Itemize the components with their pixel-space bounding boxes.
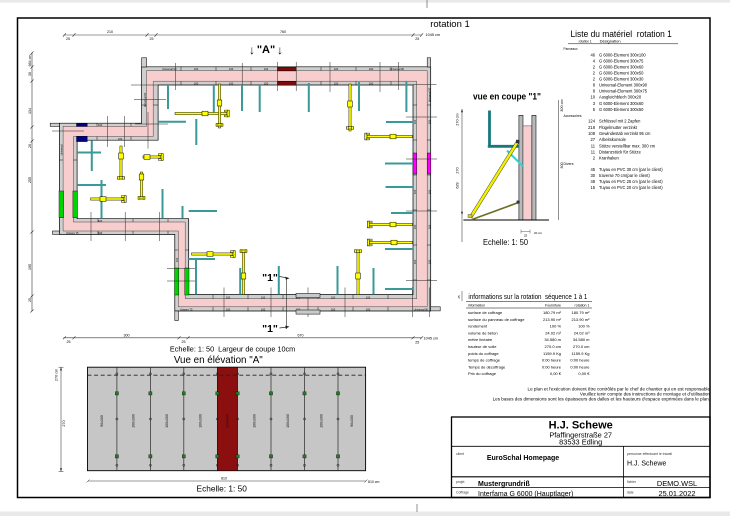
svg-text:134: 134 [28,108,32,114]
svg-text:Désignation: Désignation [600,40,621,44]
svg-text:G 6000-Element 300x60: G 6000-Element 300x60 [599,101,644,106]
svg-text:100: 100 [366,308,371,312]
svg-text:210: 210 [107,30,113,34]
svg-text:Universal: Universal [60,144,64,155]
svg-text:100: 100 [331,295,336,299]
svg-text:810: 810 [221,476,227,480]
svg-text:rotation 1: rotation 1 [430,19,470,30]
svg-text:Mustergrundriß: Mustergrundriß [478,481,530,488]
svg-text:Ausgleichblech 300x20: Ausgleichblech 300x20 [599,95,642,100]
svg-text:100 %: 100 % [578,324,590,329]
svg-text:24.02 m³: 24.02 m³ [574,330,590,335]
svg-text:G 6000-Element 300x30: G 6000-Element 300x30 [599,77,644,82]
svg-text:client: client [456,452,464,456]
svg-text:100: 100 [98,231,103,235]
svg-text:15: 15 [590,185,595,190]
svg-text:100: 100 [98,219,103,223]
svg-text:volume de béton: volume de béton [468,330,498,335]
svg-text:0,00 €: 0,00 € [578,371,590,376]
svg-text:270: 270 [456,167,460,173]
svg-text:Echelle: 1: 50 Largeur de cou: Echelle: 1: 50 Largeur de coupe 10cm [170,345,295,354]
svg-text:25: 25 [457,295,461,299]
svg-text:Panneaux: Panneaux [564,46,578,51]
svg-text:100x300: 100x300 [165,414,169,428]
svg-text:10: 10 [590,95,595,100]
svg-text:255: 255 [28,177,32,183]
svg-text:↓: ↓ [277,43,283,57]
svg-text:G 6000-Element 300x75: G 6000-Element 300x75 [599,58,644,63]
svg-text:0:00 heure: 0:00 heure [570,364,590,369]
svg-text:rendement: rendement [468,324,488,329]
svg-text:personne effectuant le travail: personne effectuant le travail [627,452,672,456]
svg-text:670: 670 [298,333,304,337]
svg-text:Flügelmutter verzinkt: Flügelmutter verzinkt [599,125,638,130]
svg-text:100: 100 [427,189,431,194]
svg-text:218: 218 [588,125,596,130]
svg-text:Universal-Element 300x75: Universal-Element 300x75 [599,89,648,94]
svg-text:Univers 75: Univers 75 [66,231,79,235]
svg-text:100: 100 [261,295,266,299]
svg-text:27: 27 [590,137,595,142]
svg-text:25: 25 [524,234,528,238]
svg-text:Echelle: 1: 50: Echelle: 1: 50 [483,238,528,247]
svg-text:213.90 m²: 213.90 m² [543,317,562,322]
svg-text:46: 46 [590,52,595,57]
svg-text:25: 25 [182,340,186,344]
svg-text:Prix du coffrage: Prix du coffrage [468,371,497,376]
svg-text:270: 270 [62,420,66,426]
svg-text:100x300: 100x300 [252,414,256,428]
svg-text:temps de coffrage: temps de coffrage [468,358,501,363]
svg-text:100: 100 [427,224,431,229]
svg-text:270 cm: 270 cm [456,113,460,125]
svg-text:100: 100 [226,295,231,299]
svg-text:810 cm: 810 cm [368,480,380,484]
svg-text:25: 25 [66,37,70,41]
svg-text:Tuyau en PVC 30 cm (par le cli: Tuyau en PVC 30 cm (par le client) [599,167,663,172]
svg-text:100x300: 100x300 [132,414,136,428]
svg-text:270.0 cm: 270.0 cm [545,344,562,349]
svg-text:11: 11 [591,149,596,154]
svg-text:25.01.2022: 25.01.2022 [659,489,696,498]
svg-text:0:00 heure: 0:00 heure [542,358,562,363]
svg-text:100: 100 [118,137,123,141]
svg-text:mètre linéaire: mètre linéaire [468,337,493,342]
svg-text:20 cm: 20 cm [534,231,543,235]
svg-text:629: 629 [456,182,460,188]
svg-text:H.J. Schewe: H.J. Schewe [627,460,666,467]
svg-text:Vue en élévation "A": Vue en élévation "A" [174,355,263,366]
svg-text:poids du coffrage: poids du coffrage [468,351,499,356]
svg-text:25: 25 [415,340,419,344]
svg-text:100: 100 [413,119,417,124]
svg-text:100: 100 [194,82,199,86]
svg-text:270 cm: 270 cm [55,369,59,381]
svg-text:Kranhaken: Kranhaken [599,156,620,161]
svg-text:"1": "1" [262,272,278,284]
svg-text:25: 25 [415,37,419,41]
svg-text:100: 100 [98,123,103,127]
svg-text:195: 195 [28,264,32,270]
svg-text:100x300: 100x300 [199,414,203,428]
svg-text:rotation 1: rotation 1 [575,303,591,308]
svg-text:surface de coffrage: surface de coffrage [468,310,503,315]
svg-text:Coffrage: Coffrage [456,491,469,495]
svg-text:1159.9 Kg: 1159.9 Kg [572,351,590,356]
svg-text:Universal 90: Universal 90 [162,67,177,71]
svg-text:G 6000-Element 300x50: G 6000-Element 300x50 [599,70,644,75]
svg-text:G 6000-Element 300x60: G 6000-Element 300x60 [599,64,644,69]
svg-text:100: 100 [334,67,339,71]
svg-text:vue en coupe "1": vue en coupe "1" [473,92,541,102]
svg-text:Les bases des dimensions sont: Les bases des dimensions sont les épaiss… [493,397,710,402]
svg-text:100: 100 [264,67,269,71]
svg-text:Arbeitskonsole: Arbeitskonsole [599,137,627,142]
svg-text:DEMO.WSL: DEMO.WSL [657,479,697,488]
svg-text:Divers: Divers [564,161,574,166]
svg-text:informations sur la rotation: informations sur la rotation séquence 1 … [468,292,587,301]
svg-text:Tuyau en PVC 20 cm (par le cli: Tuyau en PVC 20 cm (par le client) [599,185,663,190]
svg-text:↓: ↓ [249,43,255,57]
svg-text:EuroSchal Homepage: EuroSchal Homepage [487,455,559,462]
svg-text:100: 100 [369,82,374,86]
svg-text:Interfama G 6000 (Hauptlager): Interfama G 6000 (Hauptlager) [478,491,573,498]
svg-text:34.580 m: 34.580 m [573,337,590,342]
svg-text:213.90 m²: 213.90 m² [571,317,590,322]
svg-text:"1": "1" [262,323,278,335]
svg-text:Tuyau en PVC 25 cm (par le cli: Tuyau en PVC 25 cm (par le client) [599,179,663,184]
svg-text:rotation 1: rotation 1 [579,40,592,44]
svg-text:100: 100 [366,295,371,299]
svg-text:90x300: 90x300 [350,415,354,427]
svg-text:30: 30 [28,72,32,76]
svg-text:24.02 m³: 24.02 m³ [545,330,561,335]
svg-text:100: 100 [427,259,431,264]
svg-text:25: 25 [28,298,32,302]
svg-text:20: 20 [28,144,32,148]
svg-text:1159.9 Kg: 1159.9 Kg [543,351,561,356]
svg-text:0,00 €: 0,00 € [550,371,562,376]
svg-text:300: 300 [124,333,130,337]
svg-text:fichier: fichier [627,480,637,484]
svg-text:Accessoires: Accessoires [564,113,582,118]
svg-text:108: 108 [588,131,596,136]
svg-text:100 %: 100 % [550,324,562,329]
svg-text:Temps de décoffrage: Temps de décoffrage [468,364,506,369]
svg-text:Schlüssel mit 2 Zapfen: Schlüssel mit 2 Zapfen [599,119,641,124]
svg-text:300 cm: 300 cm [560,99,564,111]
svg-text:Universal 90: Universal 90 [414,308,429,312]
svg-text:100: 100 [229,82,234,86]
svg-text:100x300: 100x300 [319,414,323,428]
svg-text:100x300: 100x300 [286,414,290,428]
svg-text:30: 30 [590,173,595,178]
svg-text:surface du panneau de coffrage: surface du panneau de coffrage [468,317,525,322]
svg-text:Echelle: 1: 50: Echelle: 1: 50 [197,484,248,494]
svg-text:Fourniture: Fourniture [545,303,562,308]
svg-text:date: date [627,491,634,495]
svg-text:124: 124 [588,119,596,124]
svg-text:information: information [468,303,485,308]
svg-text:100: 100 [427,119,431,124]
svg-text:Universal 90: Universal 90 [427,87,431,102]
svg-text:Liste du matériel rotation 1: Liste du matériel rotation 1 [571,29,672,39]
svg-text:1045 cm: 1045 cm [424,337,439,341]
svg-text:180.79 m²: 180.79 m² [571,310,590,315]
svg-text:25: 25 [67,340,71,344]
svg-text:Universal 90: Universal 90 [143,92,147,107]
svg-text:664 cm: 664 cm [28,55,32,67]
svg-text:projet: projet [456,480,465,484]
svg-text:100: 100 [175,257,179,262]
svg-text:Gewindestab verzinkt 95 cm: Gewindestab verzinkt 95 cm [599,131,651,136]
svg-text:100: 100 [331,308,336,312]
svg-text:11: 11 [591,143,596,148]
svg-text:Universal 90: Universal 90 [390,67,405,71]
svg-text:48: 48 [590,179,595,184]
svg-text:traverse 70 cm(par le client): traverse 70 cm(par le client) [599,173,650,178]
svg-text:0:00 heure: 0:00 heure [570,358,590,363]
svg-text:34.580 m: 34.580 m [544,337,561,342]
svg-text:100: 100 [194,67,199,71]
svg-text:Stütze verstellbar max. 300 cm: Stütze verstellbar max. 300 cm [599,143,656,148]
svg-text:760: 760 [280,30,286,34]
svg-text:100: 100 [369,67,374,71]
svg-text:270.0 cm: 270.0 cm [573,344,590,349]
svg-text:100: 100 [229,67,234,71]
svg-text:100: 100 [264,82,269,86]
svg-text:1045 cm: 1045 cm [426,33,441,37]
svg-text:83533 Edling: 83533 Edling [559,437,602,446]
svg-text:G 6000-Element 300x50: G 6000-Element 300x50 [599,107,644,112]
svg-text:Universal-Element 300x90: Universal-Element 300x90 [599,83,648,88]
svg-text:G 6000-Element 300x100: G 6000-Element 300x100 [599,52,646,57]
svg-text:180.79 m²: 180.79 m² [543,310,562,315]
svg-text:hauteur de voile: hauteur de voile [468,344,497,349]
svg-text:100: 100 [261,308,266,312]
svg-text:Univers 75: Univers 75 [180,308,193,312]
svg-text:25: 25 [150,37,154,41]
svg-text:100: 100 [413,224,417,229]
svg-text:90x300: 90x300 [100,415,104,427]
svg-text:"A": "A" [257,44,275,56]
svg-text:100: 100 [226,308,231,312]
svg-text:100: 100 [334,82,339,86]
svg-text:0:00 heure: 0:00 heure [542,364,562,369]
svg-text:100x300: 100x300 [226,414,230,428]
svg-text:100: 100 [413,259,417,264]
svg-text:45: 45 [590,167,595,172]
svg-text:100: 100 [413,189,417,194]
svg-text:Distanzstück für Stütze: Distanzstück für Stütze [599,149,642,154]
